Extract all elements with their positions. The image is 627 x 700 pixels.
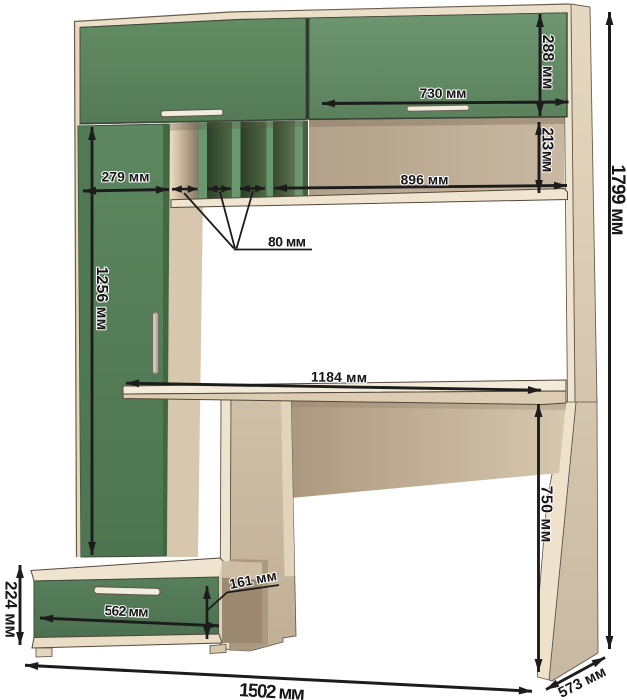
svg-text:213 мм: 213 мм (538, 128, 555, 173)
svg-text:750 мм: 750 мм (537, 486, 554, 543)
svg-text:896 мм: 896 мм (401, 172, 449, 188)
svg-text:1256 мм: 1256 мм (93, 267, 110, 331)
svg-text:1184 мм: 1184 мм (311, 369, 367, 386)
svg-text:730 мм: 730 мм (420, 85, 467, 101)
svg-text:1502 мм: 1502 мм (238, 680, 305, 700)
svg-text:224 мм: 224 мм (2, 581, 21, 638)
svg-text:1799 мм: 1799 мм (607, 165, 627, 236)
svg-text:288 мм: 288 мм (539, 35, 556, 90)
svg-text:279 мм: 279 мм (102, 169, 150, 185)
svg-text:80 мм: 80 мм (268, 234, 306, 250)
svg-text:562 мм: 562 мм (104, 602, 149, 620)
